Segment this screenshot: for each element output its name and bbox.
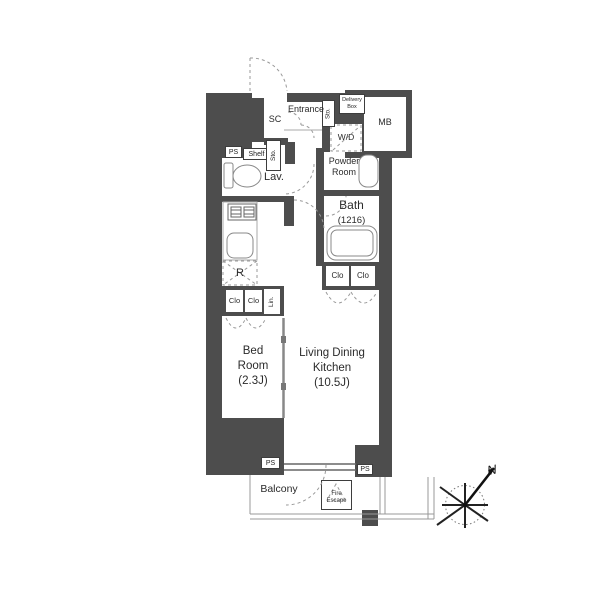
lin-text: Lin. (268, 296, 276, 306)
entrance-text: Entrance (288, 104, 324, 114)
sc-door-arc-2 (301, 125, 314, 138)
clo-text-1: Clo (229, 296, 240, 305)
compass-arm-se (465, 505, 488, 521)
bath-text: Bath (339, 198, 364, 212)
stove-burner-1 (231, 207, 241, 217)
bedroom-line2: Room (238, 360, 269, 372)
clo-text-4: Clo (357, 271, 369, 280)
wall-right (379, 150, 392, 475)
ps-label-bottom-right: PS (360, 466, 369, 473)
plan-annotations: N (0, 0, 600, 604)
kitchen-sink (227, 233, 253, 258)
closet-left-1-label: Clo (226, 296, 243, 305)
storage-label: Sto. (270, 150, 277, 162)
sc-text: SC (269, 114, 282, 124)
lav-label: Lav. (256, 171, 292, 184)
fire-escape-line2: Escape (326, 498, 346, 504)
kitchen-counter (223, 202, 257, 260)
wall-powder-bath-divider (324, 190, 379, 196)
mb-label: MB (364, 117, 406, 128)
entrance-label: Entrance (283, 104, 329, 115)
wd-text: W/D (338, 132, 355, 142)
partition-tick-1 (281, 336, 286, 343)
ps-label-bottom-left: PS (266, 460, 275, 467)
closet-right-scallop-1 (326, 292, 351, 303)
storage-strip-lav: Sto. (266, 140, 281, 171)
bath-size-text: (1216) (338, 215, 365, 226)
wd-label: W/D (330, 132, 362, 142)
bedroom-line1: Bed (243, 345, 263, 357)
closet-left-scallop-1 (226, 318, 246, 328)
ps-box-bottom-left: PS (261, 457, 280, 469)
ps-box-top: PS (225, 146, 242, 158)
wall-lav-kitchen-divider (222, 196, 284, 202)
powder-room-label: Powder Room (322, 156, 366, 179)
linen-label: Lin. (264, 289, 280, 314)
lav-text: Lav. (264, 171, 284, 183)
stove (228, 204, 256, 220)
ldk-size: (10.5J) (314, 377, 350, 389)
balcony-text: Balcony (260, 483, 297, 495)
closet-right-2-label: Clo (351, 271, 375, 281)
wall-lav-hall-stub (285, 142, 295, 164)
clo-text-3: Clo (331, 271, 343, 280)
wall-hall-ldk-stub (284, 196, 294, 226)
toilet-tank (224, 163, 233, 188)
compass-center-dot (463, 503, 467, 507)
bedroom-size: (2.3J) (238, 375, 267, 387)
compass-needle-ne (465, 468, 494, 505)
powder-line2: Room (332, 167, 356, 177)
ldk-line1: Living Dining (299, 347, 365, 359)
clo-text-2: Clo (248, 296, 259, 305)
fridge-label: R (222, 267, 258, 280)
closet-right-scallop-2 (351, 292, 377, 303)
delivery-box-label-line1: Delivery (342, 97, 362, 103)
compass-circle (446, 486, 485, 525)
balcony-corner-block (362, 510, 378, 526)
fire-escape-line1: Fire (331, 491, 341, 497)
ps-box-bottom-right: PS (357, 464, 373, 475)
compass-arrowhead (488, 468, 494, 475)
closet-left-scallop-2 (246, 318, 266, 328)
balcony-label: Balcony (250, 483, 308, 496)
wall-topleft-block (206, 93, 252, 148)
bedroom-label: Bed Room (2.3J) (222, 344, 284, 389)
ps-label: PS (229, 149, 238, 156)
sc-label: SC (262, 114, 288, 125)
closet-right-1-label: Clo (326, 271, 349, 281)
delivery-box-label-line2: Box (347, 104, 356, 110)
stove-burner-2 (244, 207, 254, 217)
ldk-label: Living Dining Kitchen (10.5J) (284, 346, 380, 391)
front-door-arc2 (250, 58, 287, 91)
bathtub-outer (327, 226, 377, 260)
fridge-text: R (236, 267, 244, 279)
compass-arm-sw (437, 505, 465, 525)
compass: N (437, 461, 498, 528)
powder-line1: Powder (329, 156, 360, 166)
mb-text: MB (378, 117, 392, 127)
floor-plan: N Delivery Box PS Shelf Sto. Sto. PS PS … (0, 0, 600, 604)
ldk-line2: Kitchen (313, 362, 351, 374)
bath-label: Bath (1216) (324, 199, 379, 227)
shelf-label: Shelf (249, 151, 265, 158)
closet-left-2-label: Clo (245, 296, 262, 305)
delivery-box: Delivery Box (339, 94, 365, 114)
compass-north-label: N (486, 461, 498, 478)
fire-escape-label: Fire Escape (321, 491, 352, 505)
compass-arm-nw (440, 487, 465, 505)
stove-grate-lines (231, 210, 254, 214)
bathtub-inner (331, 230, 373, 256)
